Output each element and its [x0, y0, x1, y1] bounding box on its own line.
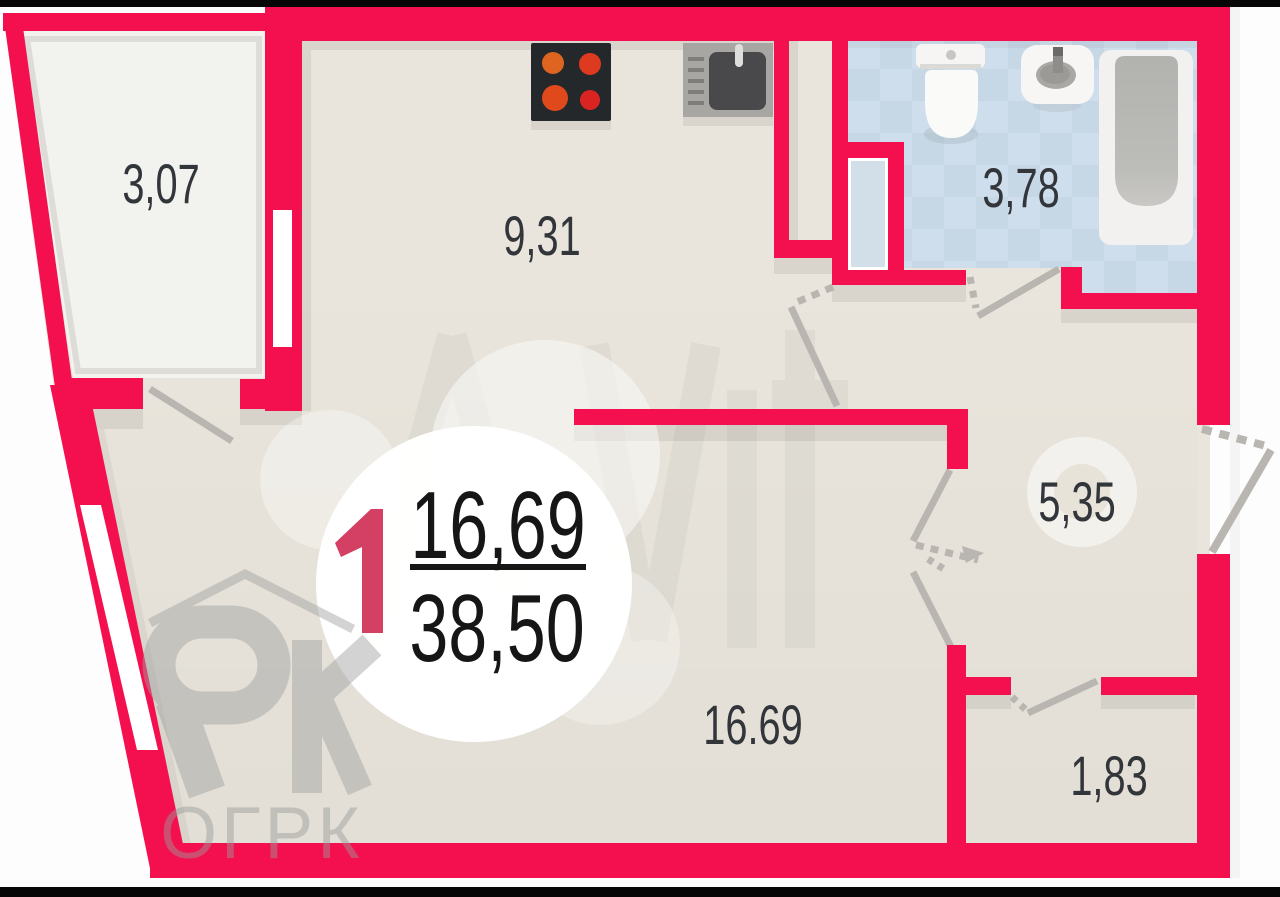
- svg-text:9,31: 9,31: [503, 205, 580, 267]
- svg-text:16,69: 16,69: [410, 471, 585, 578]
- svg-text:3,07: 3,07: [122, 153, 199, 215]
- svg-text:3,78: 3,78: [982, 157, 1059, 219]
- svg-text:38,50: 38,50: [409, 574, 584, 681]
- svg-text:5,35: 5,35: [1038, 471, 1115, 533]
- svg-text:16.69: 16.69: [703, 694, 802, 756]
- svg-text:1,83: 1,83: [1070, 745, 1147, 807]
- svg-text:ОГРК: ОГРК: [160, 793, 364, 874]
